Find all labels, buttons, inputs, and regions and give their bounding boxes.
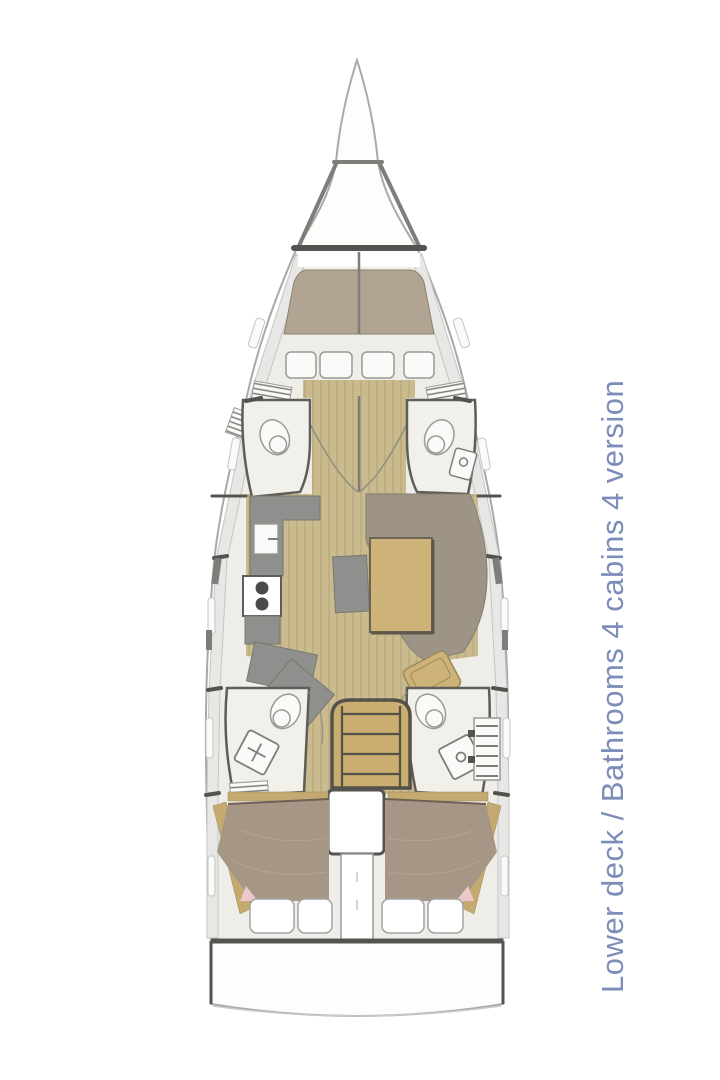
cushion [320,352,352,378]
pillow [428,899,463,933]
galley-counter-aft [245,616,280,644]
burner-icon [256,582,269,595]
cushion [404,352,434,378]
salon-table [370,538,433,634]
companionway-stairs [332,700,410,788]
pillow [382,899,424,933]
salon-bench [333,555,370,613]
engine-hatch [328,790,384,854]
aft-center-passage [341,854,373,941]
deck-caption: Lower deck / Bathrooms 4 cabins 4 versio… [586,328,640,1044]
page: Lower deck / Bathrooms 4 cabins 4 versio… [0,0,720,1080]
forward-cabin-floor [303,380,415,398]
forward-head-port [242,400,310,497]
pillow [298,899,332,933]
cushion [286,352,316,378]
burner-icon [256,598,269,611]
pillow [250,899,294,933]
forward-head-starboard [407,400,477,494]
cushion [362,352,394,378]
stove-icon [243,576,281,616]
